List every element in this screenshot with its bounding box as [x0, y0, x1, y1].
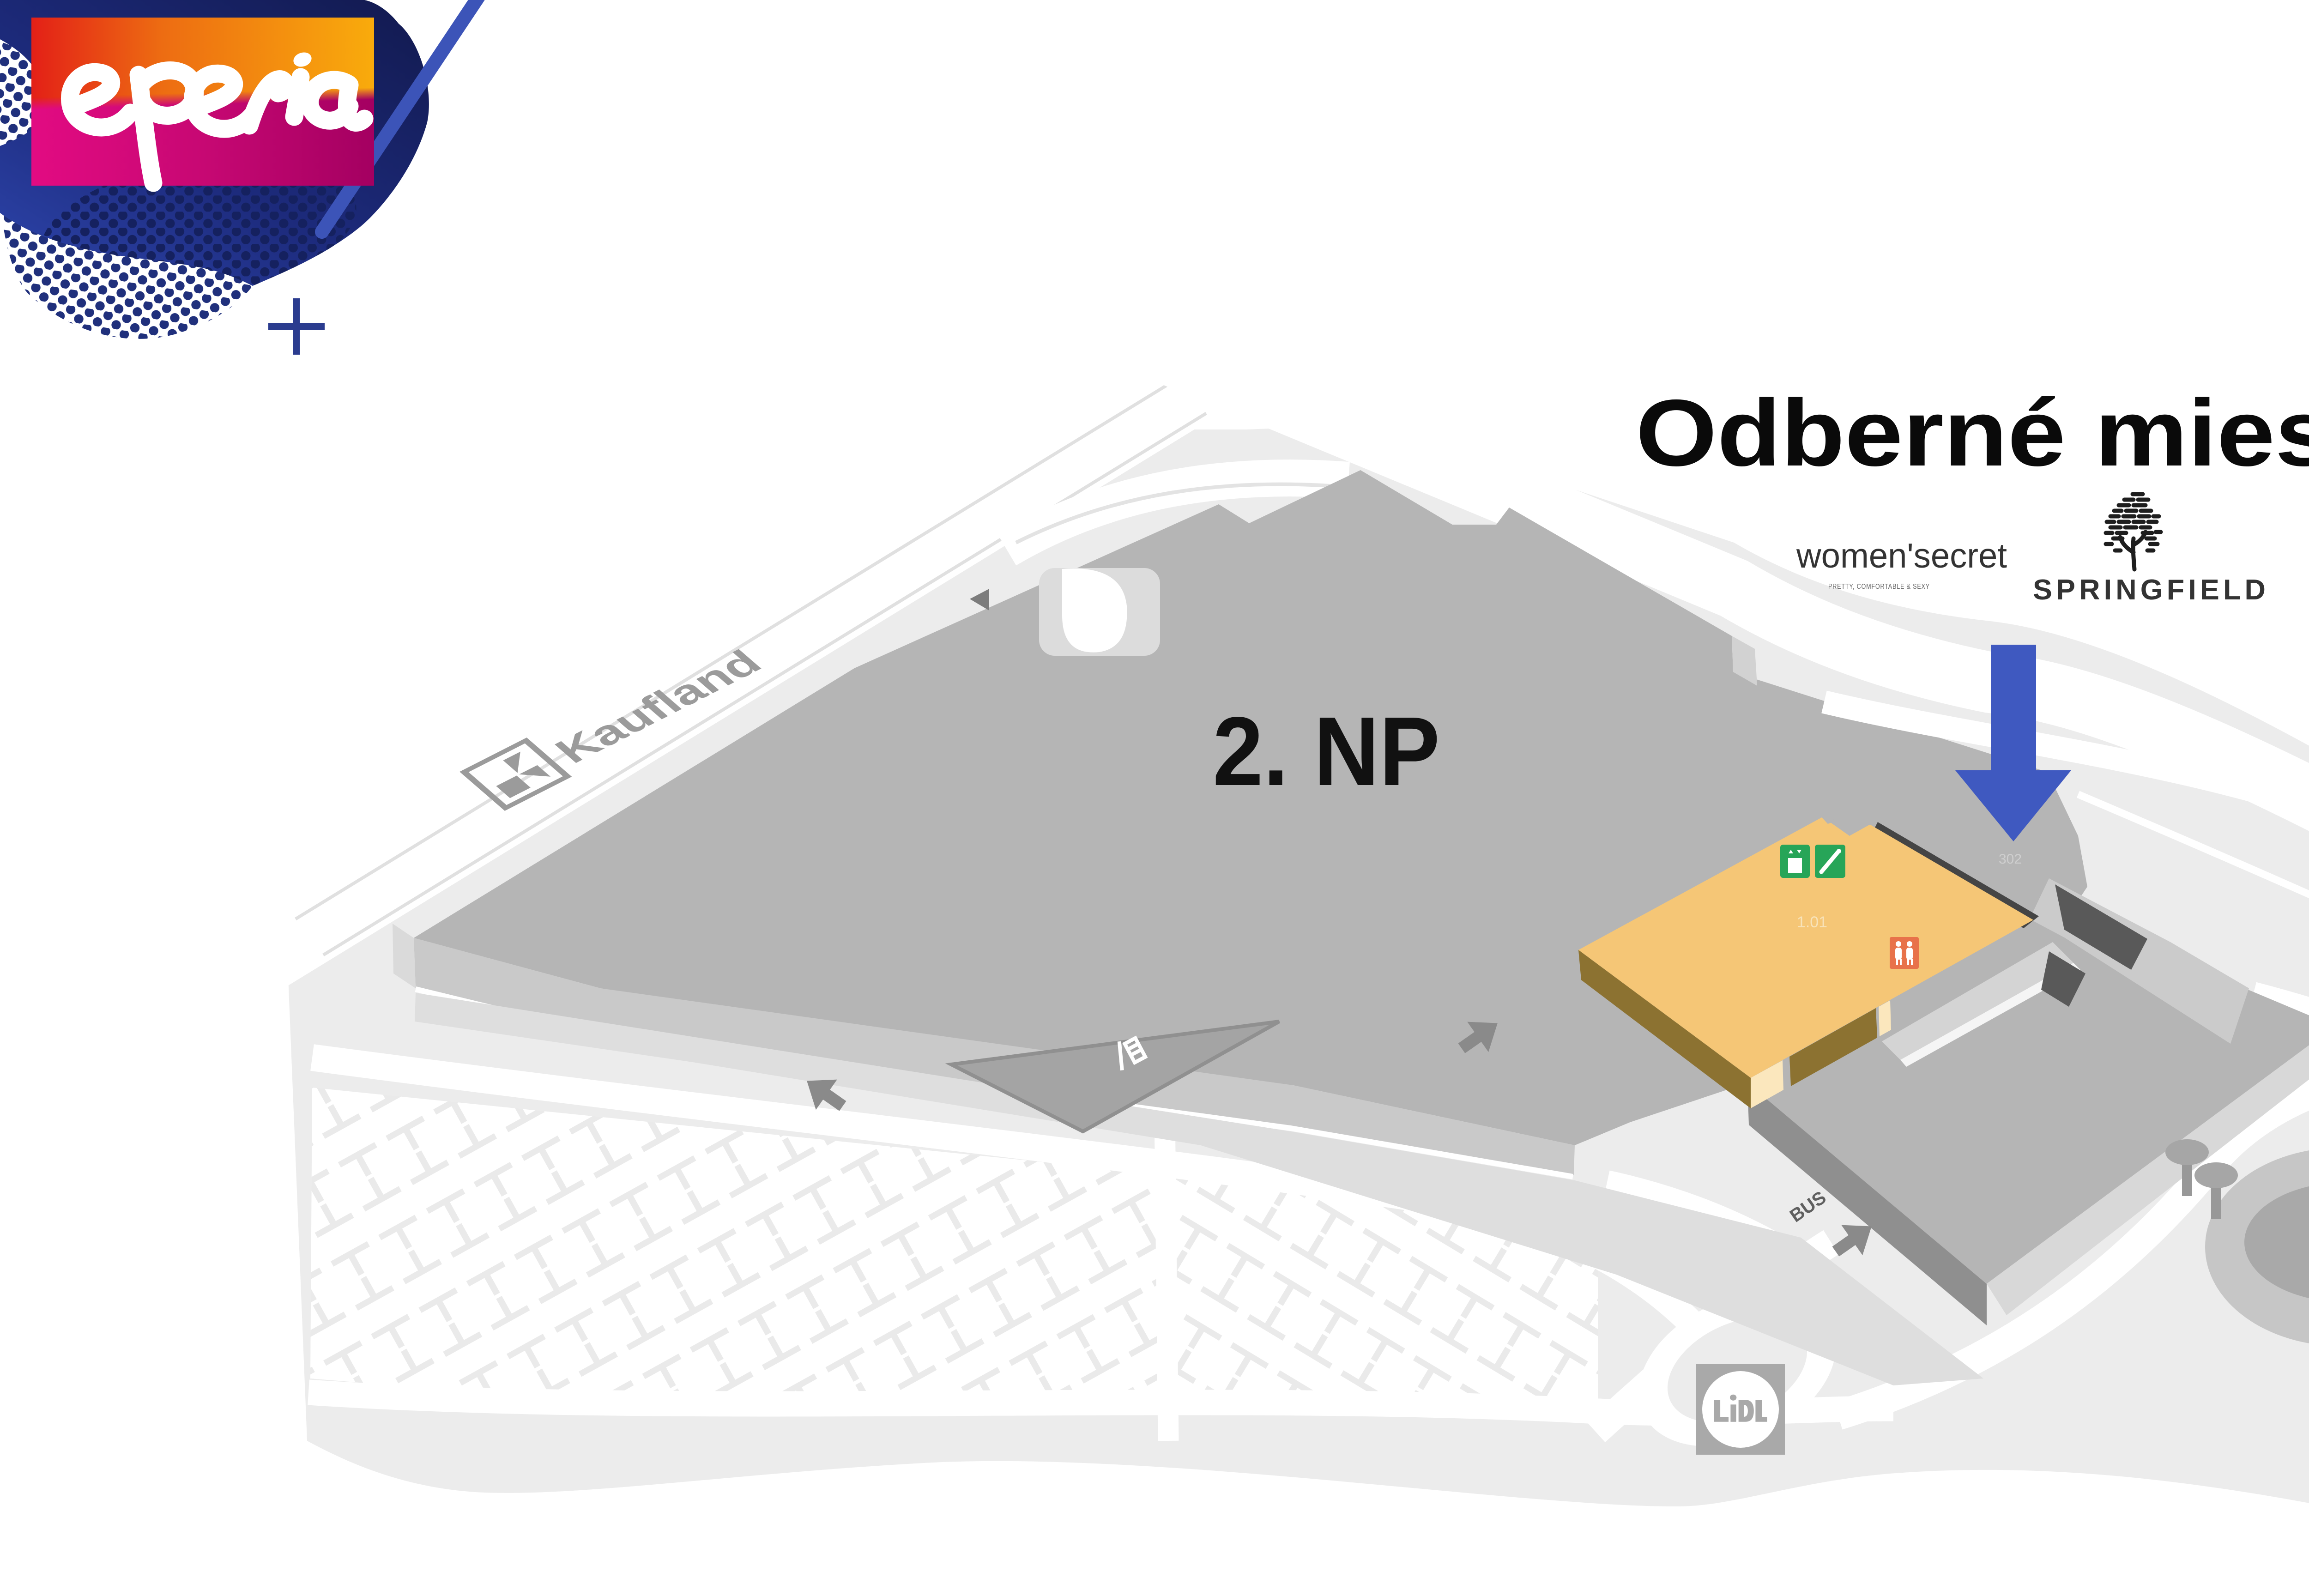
svg-text:302: 302 [1999, 852, 2022, 867]
svg-text:2. NP: 2. NP [1213, 696, 1440, 806]
svg-text:SPRINGFIELD: SPRINGFIELD [2033, 574, 2269, 606]
svg-text:Odberné miesto: Odberné miesto [1636, 380, 2309, 486]
svg-text:PRETTY, COMFORTABLE & SEXY: PRETTY, COMFORTABLE & SEXY [1828, 583, 1930, 591]
svg-text:women'secret: women'secret [1796, 536, 2007, 575]
svg-text:1.01: 1.01 [1797, 913, 1827, 931]
